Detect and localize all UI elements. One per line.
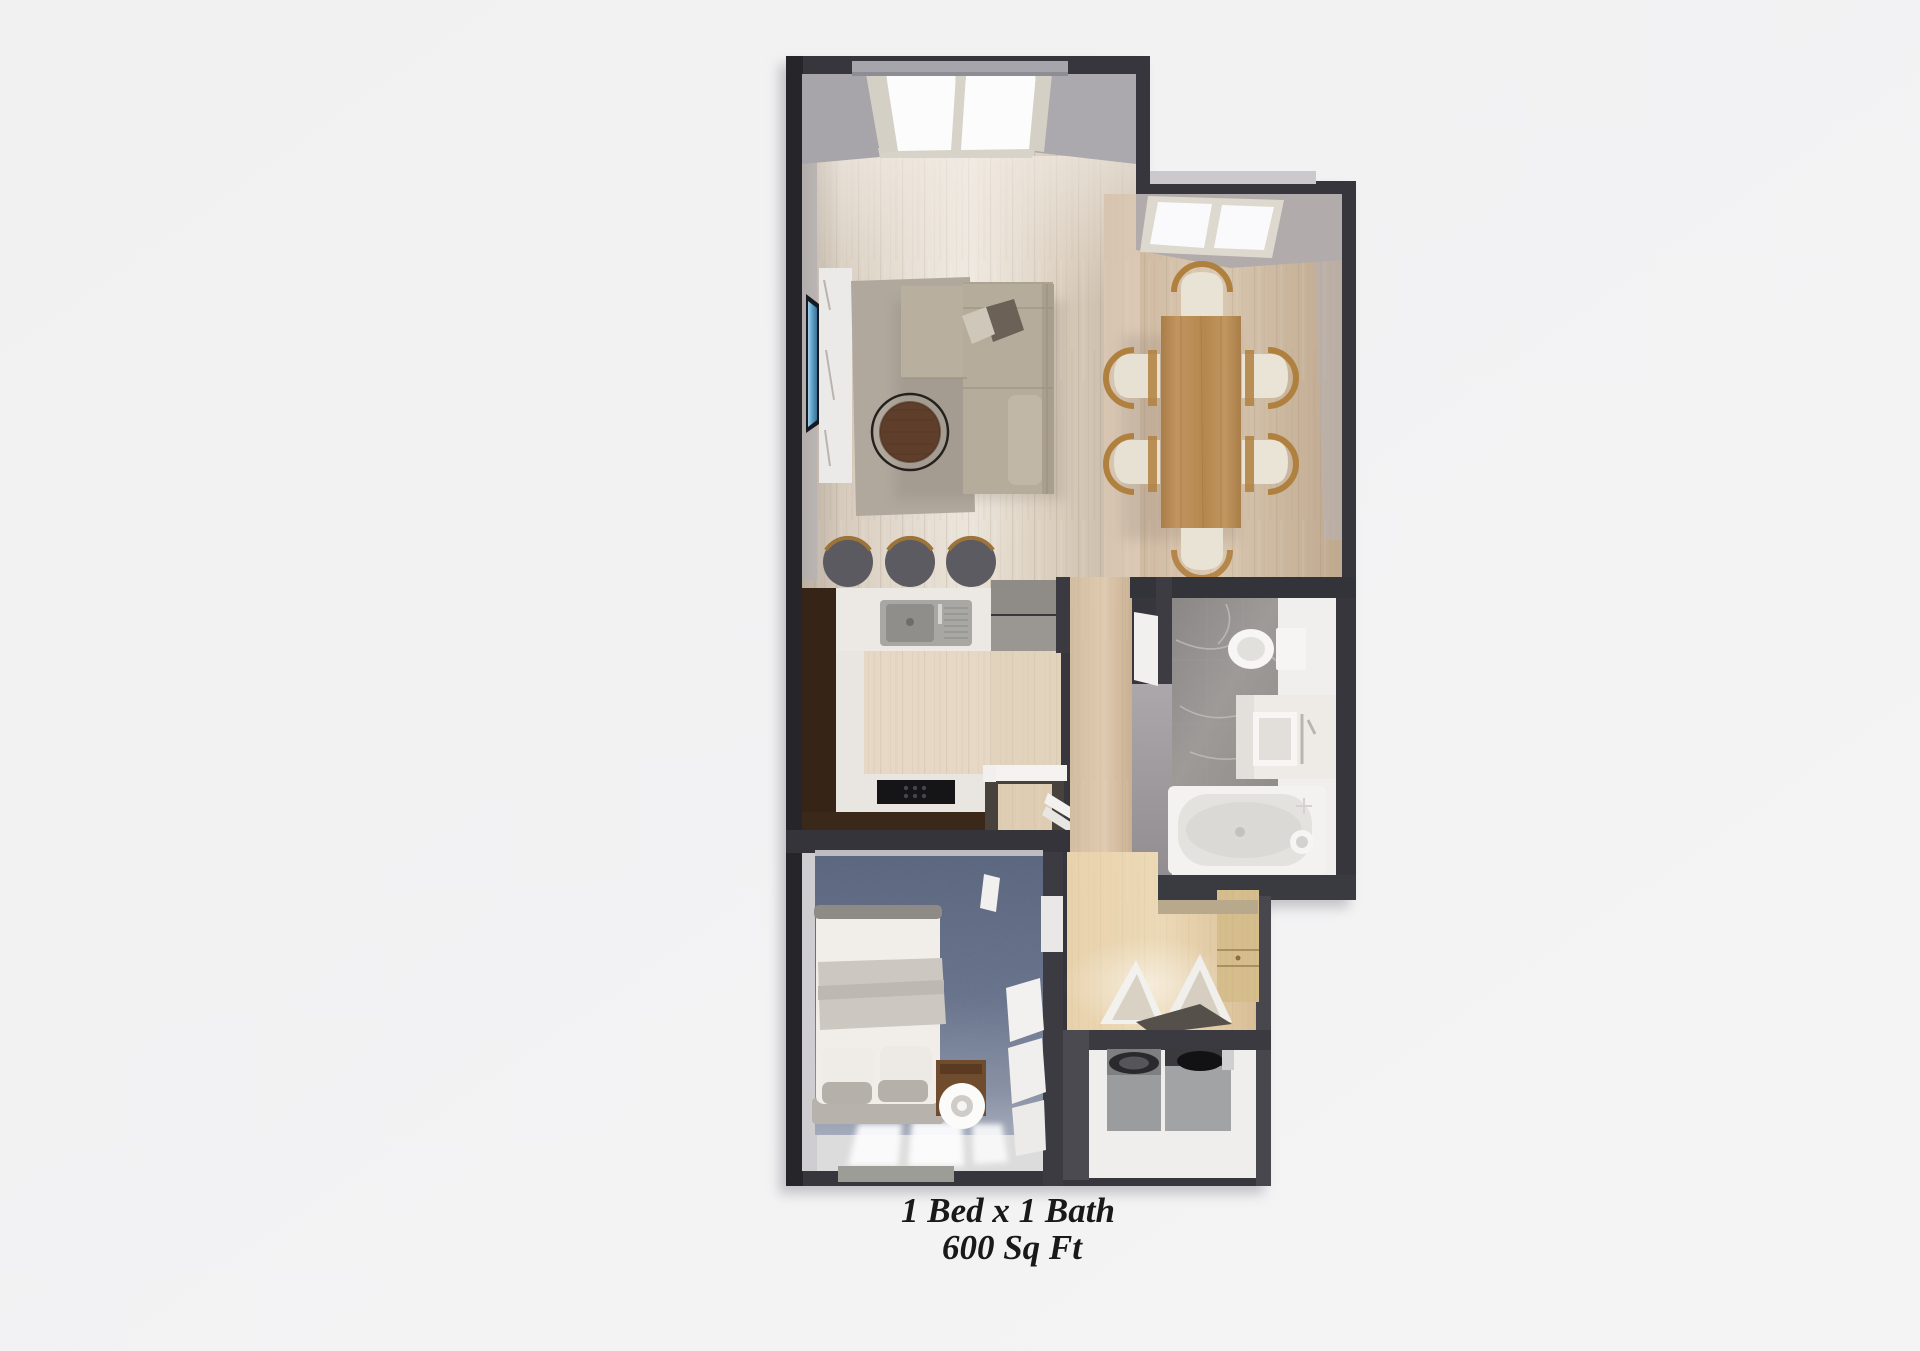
svg-text:600 Sq Ft: 600 Sq Ft bbox=[942, 1228, 1083, 1267]
svg-text:1 Bed x 1 Bath: 1 Bed x 1 Bath bbox=[901, 1191, 1115, 1230]
